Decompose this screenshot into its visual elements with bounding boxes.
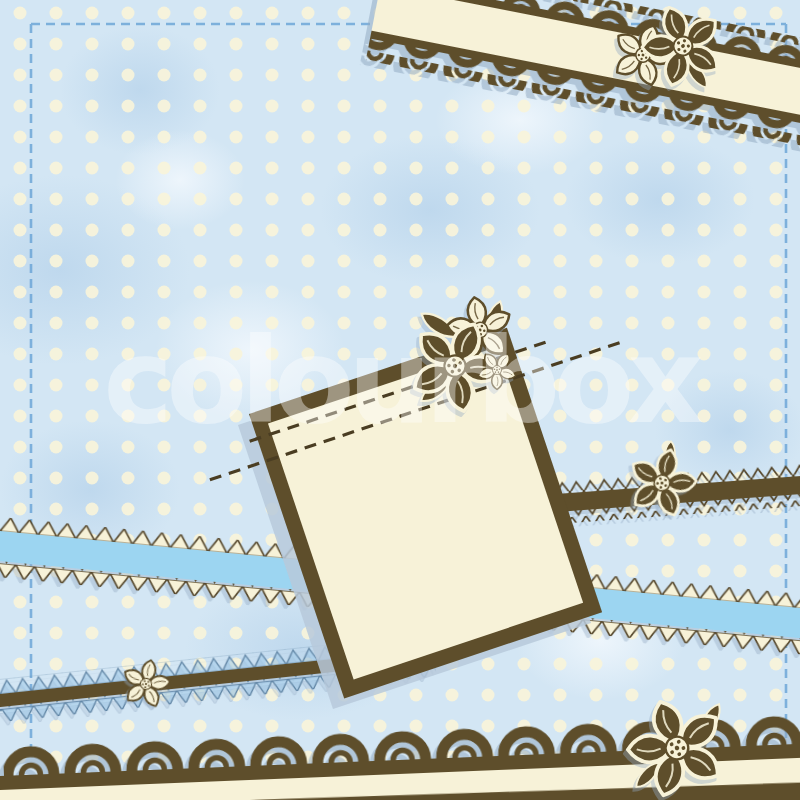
scrapbook-template-image: colourbox <box>0 0 800 800</box>
scrapbook-canvas <box>0 0 800 800</box>
